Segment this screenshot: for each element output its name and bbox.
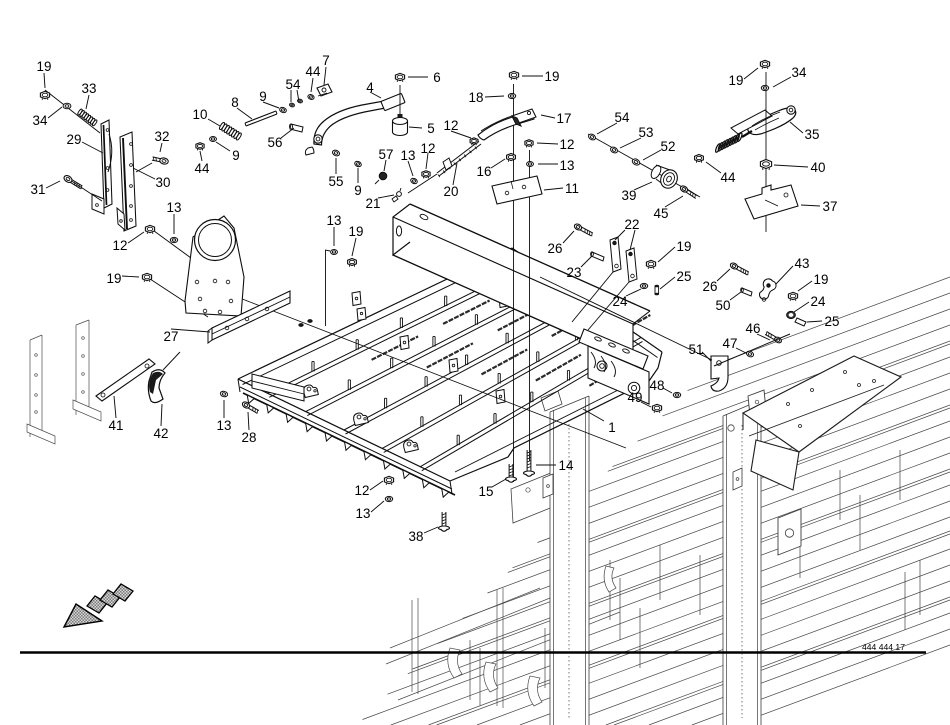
svg-text:54: 54 <box>615 110 630 125</box>
svg-text:24: 24 <box>811 294 826 309</box>
svg-text:37: 37 <box>823 199 838 214</box>
svg-text:24: 24 <box>613 294 628 309</box>
svg-text:38: 38 <box>409 529 424 544</box>
svg-text:32: 32 <box>155 129 170 144</box>
svg-text:44: 44 <box>306 64 321 79</box>
svg-text:17: 17 <box>557 111 572 126</box>
svg-text:12: 12 <box>560 137 575 152</box>
svg-text:5: 5 <box>427 121 434 136</box>
svg-text:16: 16 <box>477 164 492 179</box>
svg-text:31: 31 <box>31 182 46 197</box>
svg-text:50: 50 <box>716 298 731 313</box>
svg-text:28: 28 <box>242 430 257 445</box>
svg-text:43: 43 <box>795 256 810 271</box>
svg-text:48: 48 <box>650 378 665 393</box>
svg-text:7: 7 <box>322 53 329 68</box>
svg-text:19: 19 <box>814 272 829 287</box>
svg-text:13: 13 <box>217 418 232 433</box>
svg-text:51: 51 <box>689 342 704 357</box>
svg-text:21: 21 <box>366 196 381 211</box>
svg-text:8: 8 <box>231 95 238 110</box>
svg-text:444 444 17: 444 444 17 <box>862 642 905 652</box>
svg-text:14: 14 <box>559 458 574 473</box>
svg-text:33: 33 <box>82 81 97 96</box>
svg-text:27: 27 <box>164 329 179 344</box>
svg-text:19: 19 <box>37 59 52 74</box>
svg-text:52: 52 <box>661 139 676 154</box>
svg-text:12: 12 <box>444 118 459 133</box>
svg-text:19: 19 <box>545 69 560 84</box>
svg-text:41: 41 <box>109 418 124 433</box>
svg-text:6: 6 <box>433 70 440 85</box>
svg-text:30: 30 <box>156 175 171 190</box>
svg-text:11: 11 <box>565 181 579 196</box>
svg-text:39: 39 <box>622 188 637 203</box>
svg-text:19: 19 <box>107 271 122 286</box>
svg-text:13: 13 <box>401 148 416 163</box>
svg-text:34: 34 <box>33 113 48 128</box>
svg-text:15: 15 <box>479 484 494 499</box>
svg-text:12: 12 <box>113 238 128 253</box>
svg-text:40: 40 <box>811 160 826 175</box>
svg-text:18: 18 <box>469 90 484 105</box>
svg-text:4: 4 <box>366 80 374 95</box>
svg-text:26: 26 <box>703 279 718 294</box>
svg-text:1: 1 <box>608 420 615 435</box>
svg-text:25: 25 <box>677 269 692 284</box>
svg-text:9: 9 <box>354 183 361 198</box>
svg-text:19: 19 <box>349 224 364 239</box>
svg-text:10: 10 <box>193 107 208 122</box>
svg-text:22: 22 <box>625 217 640 232</box>
svg-text:13: 13 <box>167 200 182 215</box>
svg-text:44: 44 <box>195 161 210 176</box>
svg-text:46: 46 <box>746 321 761 336</box>
svg-text:26: 26 <box>548 241 563 256</box>
svg-text:19: 19 <box>729 73 744 88</box>
svg-text:25: 25 <box>825 314 840 329</box>
svg-text:13: 13 <box>560 158 575 173</box>
svg-text:29: 29 <box>67 132 82 147</box>
svg-text:57: 57 <box>379 147 394 162</box>
svg-text:13: 13 <box>356 506 371 521</box>
svg-text:19: 19 <box>677 239 692 254</box>
svg-text:56: 56 <box>268 135 283 150</box>
svg-text:49: 49 <box>628 390 643 405</box>
svg-text:13: 13 <box>327 213 342 228</box>
svg-text:9: 9 <box>232 148 239 163</box>
svg-text:20: 20 <box>444 184 459 199</box>
svg-text:12: 12 <box>421 141 436 156</box>
svg-text:9: 9 <box>259 89 266 104</box>
svg-text:44: 44 <box>721 170 736 185</box>
svg-text:54: 54 <box>286 77 301 92</box>
svg-text:55: 55 <box>329 174 344 189</box>
svg-text:47: 47 <box>723 336 738 351</box>
svg-text:23: 23 <box>567 265 582 280</box>
svg-text:42: 42 <box>154 426 169 441</box>
svg-text:12: 12 <box>355 483 370 498</box>
svg-text:34: 34 <box>792 65 807 80</box>
svg-text:45: 45 <box>654 206 669 221</box>
svg-text:35: 35 <box>805 127 820 142</box>
svg-text:53: 53 <box>639 125 654 140</box>
